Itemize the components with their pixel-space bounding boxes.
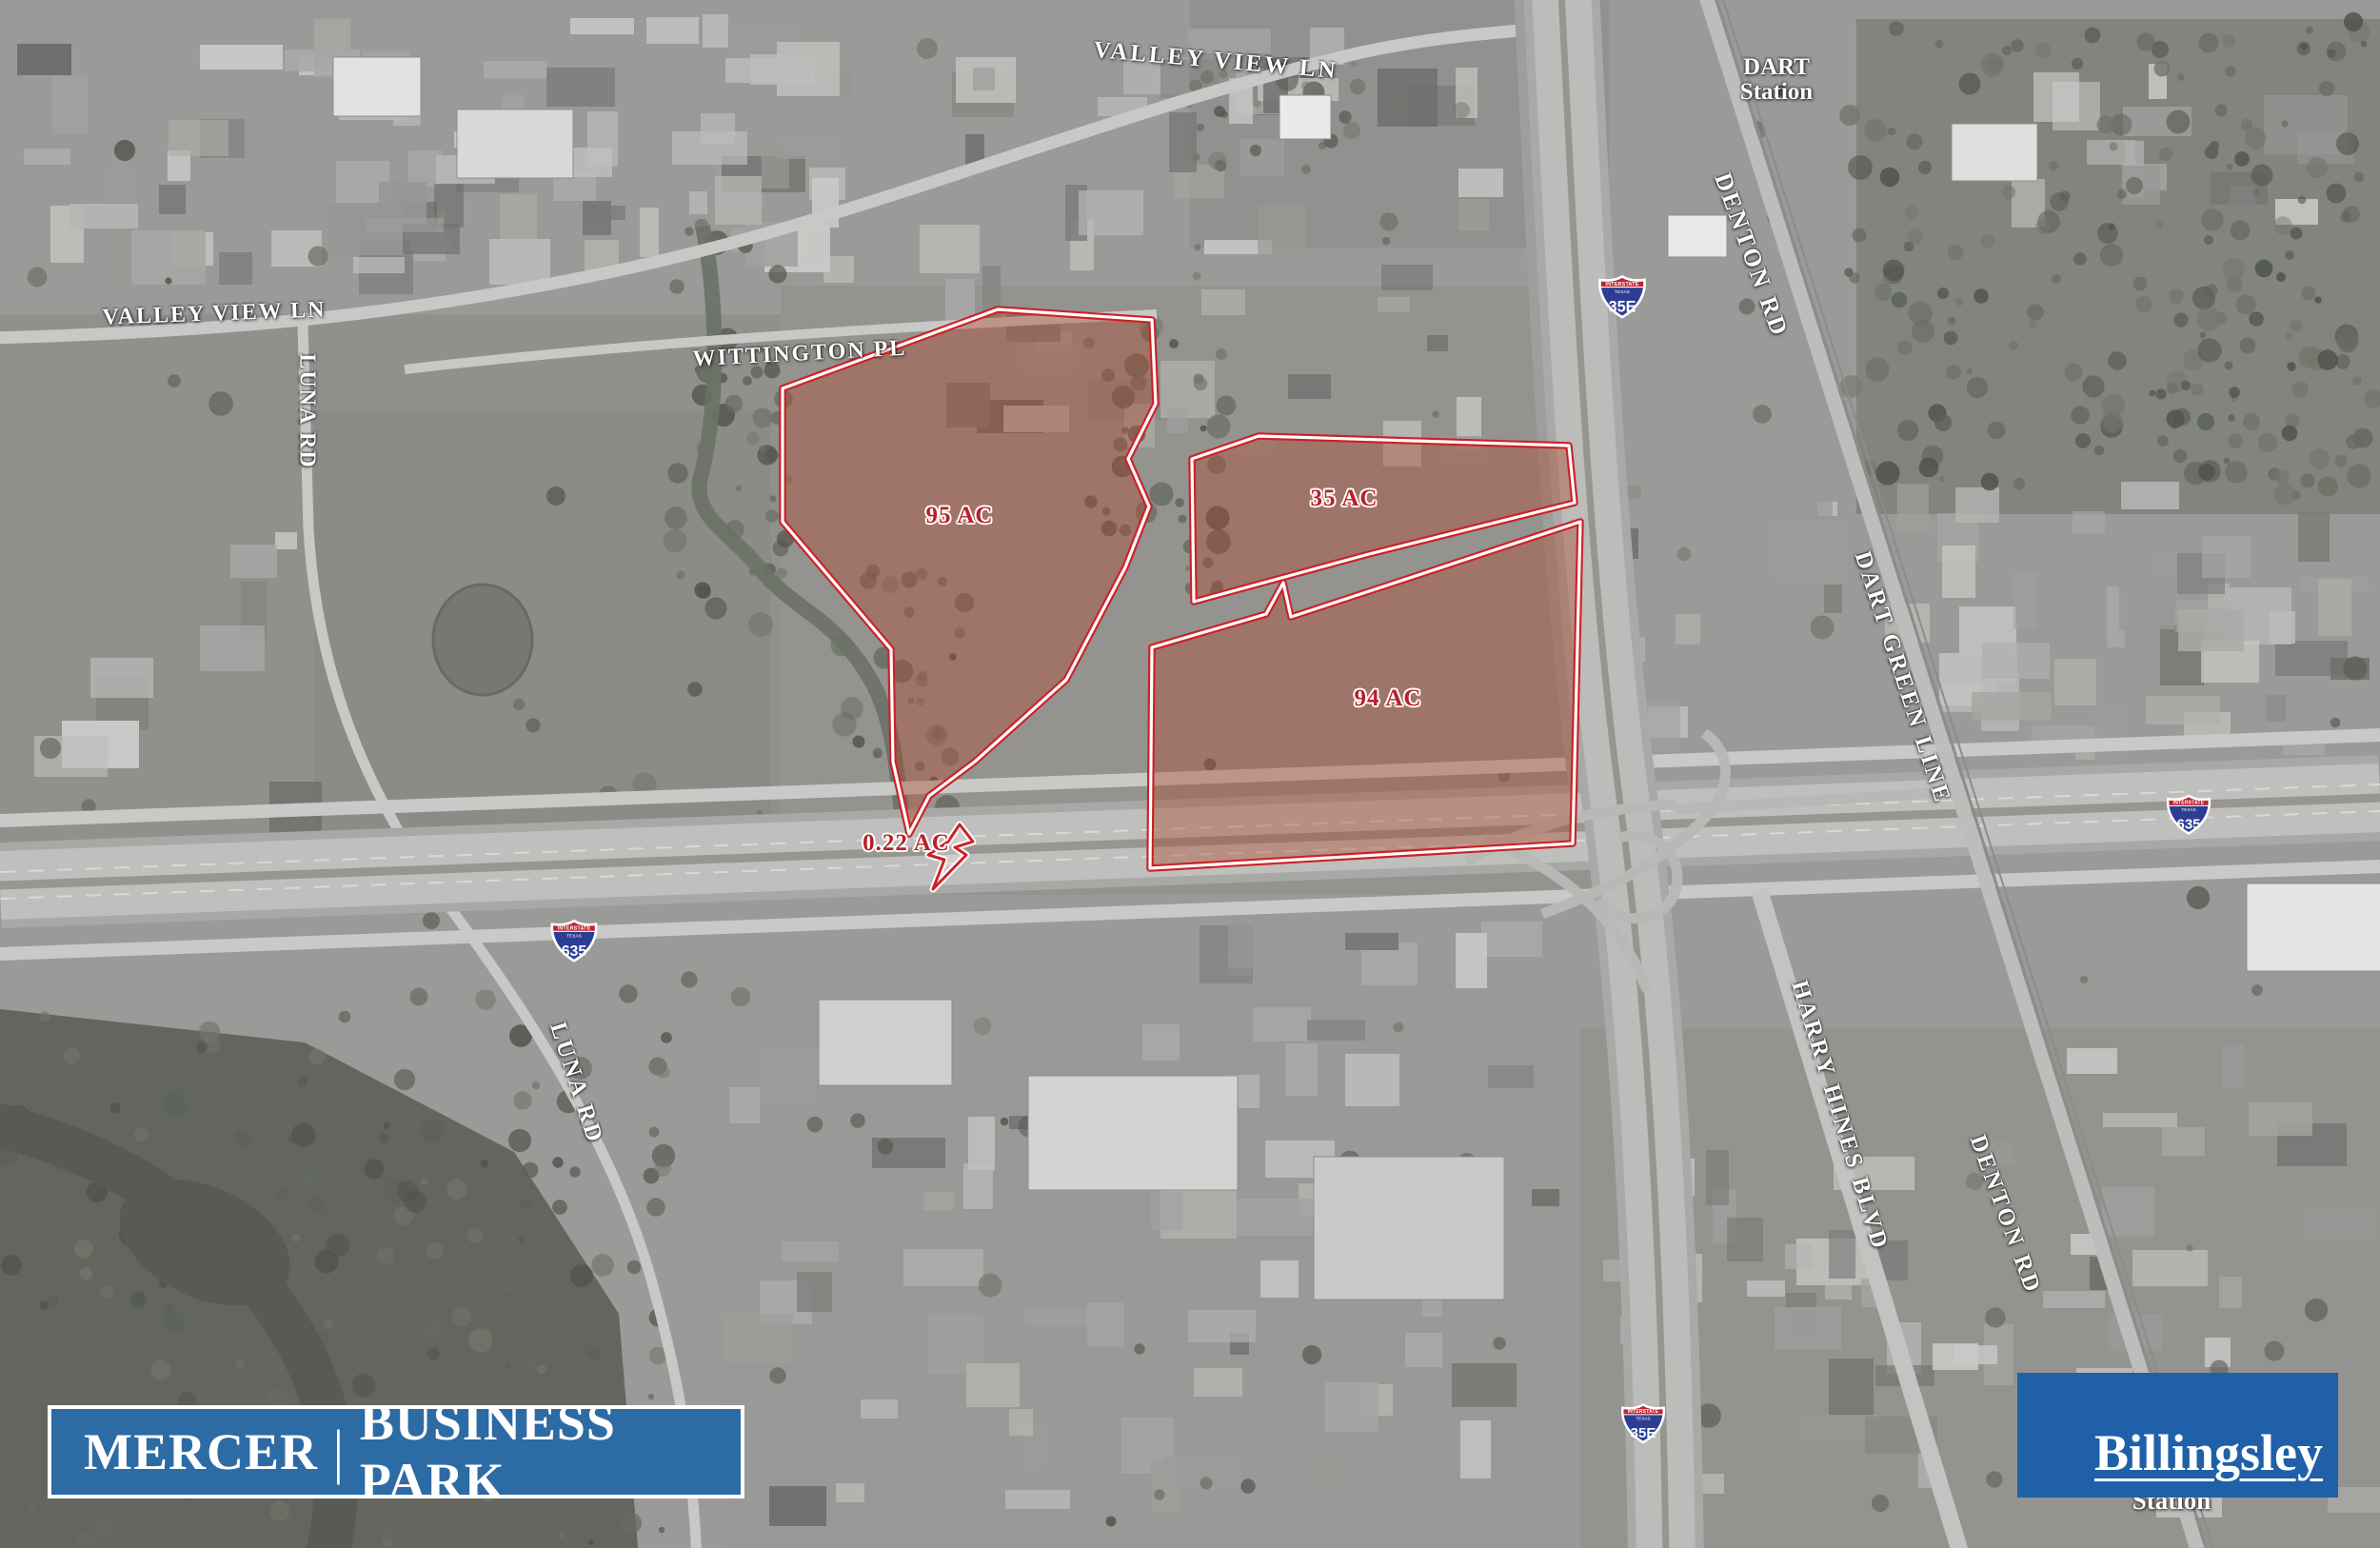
svg-text:INTERSTATE: INTERSTATE [2173,801,2205,806]
banner-text-mercer: MERCER [84,1422,318,1481]
interstate-shield-635: INTERSTATETEXAS635 [547,919,601,963]
svg-text:35E: 35E [1609,299,1636,316]
parcel-acreage-label: 0.22 AC [863,830,950,857]
parcel-acreage-label: 95 AC [926,503,994,529]
road-label-wittington-pl: WITTINGTON PL [692,337,907,372]
banner-divider: | [333,1417,345,1486]
svg-text:TEXAS: TEXAS [1615,289,1631,295]
svg-text:TEXAS: TEXAS [566,933,583,939]
road-label-luna-rd-north: LUNA RD [295,353,319,468]
svg-text:35E: 35E [1631,1425,1656,1441]
road-label-luna-rd-south: LUNA RD [545,1020,607,1147]
parcel-acreage-label: 35 AC [1311,486,1378,512]
interstate-shield-35e: INTERSTATETEXAS35E [1619,1402,1667,1444]
road-label-dart-station: DART Station [1740,55,1813,105]
svg-text:INTERSTATE: INTERSTATE [1628,1409,1659,1415]
interstate-shield-635: INTERSTATETEXAS635 [2165,793,2212,836]
billingsley-logo-banner: Billingsley [2017,1373,2338,1498]
svg-text:INTERSTATE: INTERSTATE [1605,282,1638,288]
road-label-harry-hines-blvd: HARRY HINES BLVD [1786,978,1892,1254]
road-label-denton-rd-north: DENTON RD [1710,169,1794,341]
road-label-valley-view-ln-north: VALLEY VIEW LN [1092,38,1339,84]
road-label-dart-green-line: DART GREEN LINE [1850,548,1954,807]
svg-text:INTERSTATE: INTERSTATE [558,926,591,932]
billingsley-wordmark: Billingsley [2094,1423,2323,1482]
road-label-denton-rd-south: DENTON RD [1965,1132,2046,1298]
banner-text-business-park: BUSINESS PARK [360,1393,741,1511]
mercer-business-park-banner: MERCER|BUSINESS PARK [48,1405,744,1498]
parcel-acreage-label: 94 AC [1355,685,1422,712]
road-label-valley-view-ln-west: VALLEY VIEW LN [102,298,327,329]
svg-text:TEXAS: TEXAS [1636,1417,1650,1421]
svg-text:TEXAS: TEXAS [2181,807,2195,812]
interstate-shield-35e: INTERSTATETEXAS35E [1597,274,1648,319]
map-labels-layer: VALLEY VIEW LNLUNA RDWITTINGTON PLVALLEY… [0,0,2380,1548]
svg-text:635: 635 [2176,817,2200,833]
svg-text:635: 635 [562,943,587,960]
aerial-map: VALLEY VIEW LNLUNA RDWITTINGTON PLVALLEY… [0,0,2380,1548]
